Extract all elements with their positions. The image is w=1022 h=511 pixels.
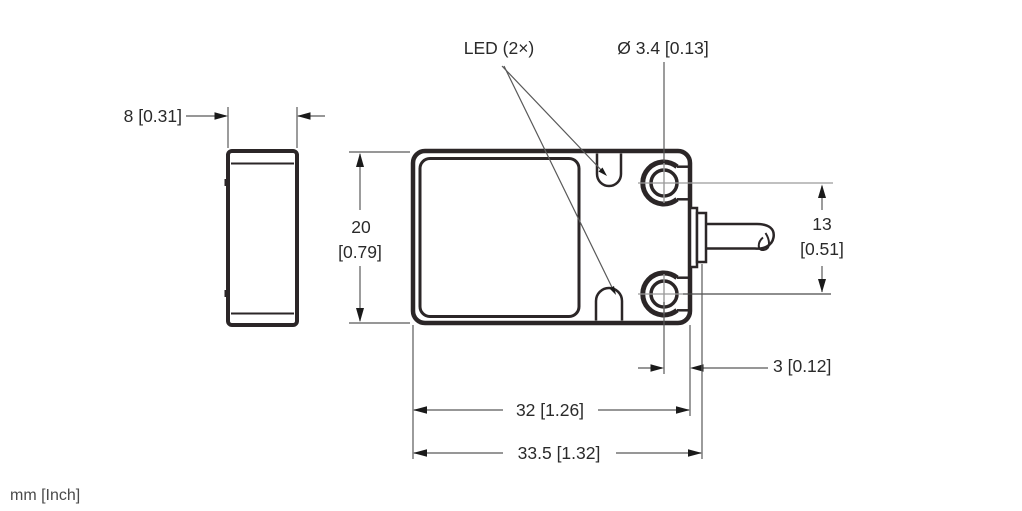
- dimension-33-5: [413, 264, 702, 459]
- hole-edge-offset-label: 3 [0.12]: [773, 356, 831, 376]
- led-label: LED (2×): [464, 38, 535, 58]
- front-view: [413, 151, 690, 323]
- arrowhead: [818, 185, 826, 199]
- led-window-bottom: [596, 288, 622, 321]
- side-width-label: 8 [0.31]: [124, 106, 182, 126]
- cable-exit: [690, 208, 774, 267]
- hole-spacing-inch-label: [0.51]: [800, 239, 844, 259]
- dimension-20: [349, 152, 410, 323]
- overall-length-label: 33.5 [1.32]: [518, 443, 601, 463]
- dimension-32: [413, 325, 690, 459]
- side-view: [225, 151, 298, 325]
- side-view-outline: [228, 151, 297, 325]
- hole-diameter-label: Ø 3.4 [0.13]: [617, 38, 708, 58]
- drawing-geometry: [0, 0, 1022, 511]
- units-note: mm [Inch]: [10, 486, 80, 506]
- arrowhead: [413, 406, 427, 414]
- arrowhead: [676, 406, 690, 414]
- arrowhead: [297, 112, 311, 120]
- height-inch-label: [0.79]: [338, 242, 382, 262]
- arrowhead: [413, 449, 427, 457]
- body-length-label: 32 [1.26]: [516, 400, 584, 420]
- arrowhead: [818, 279, 826, 293]
- leader-led-top: [502, 66, 604, 173]
- hole-spacing-mm-label: 13: [812, 214, 831, 234]
- arrowhead: [356, 308, 364, 322]
- side-view-nub-bottom: [225, 290, 229, 297]
- height-mm-label: 20: [351, 217, 370, 237]
- arrowhead: [688, 449, 702, 457]
- sensing-face-outline: [420, 159, 579, 317]
- dimension-drawing-canvas: LED (2×) Ø 3.4 [0.13] 8 [0.31] 20 [0.79]…: [0, 0, 1022, 511]
- arrowhead: [215, 112, 229, 120]
- front-view-outline: [413, 151, 690, 323]
- arrowhead: [356, 153, 364, 167]
- cable-gland: [697, 213, 706, 262]
- cable: [706, 224, 774, 249]
- leader-lines: [502, 62, 664, 295]
- side-view-nub-top: [225, 179, 229, 186]
- dimension-8: [186, 107, 325, 148]
- arrowhead: [651, 364, 665, 372]
